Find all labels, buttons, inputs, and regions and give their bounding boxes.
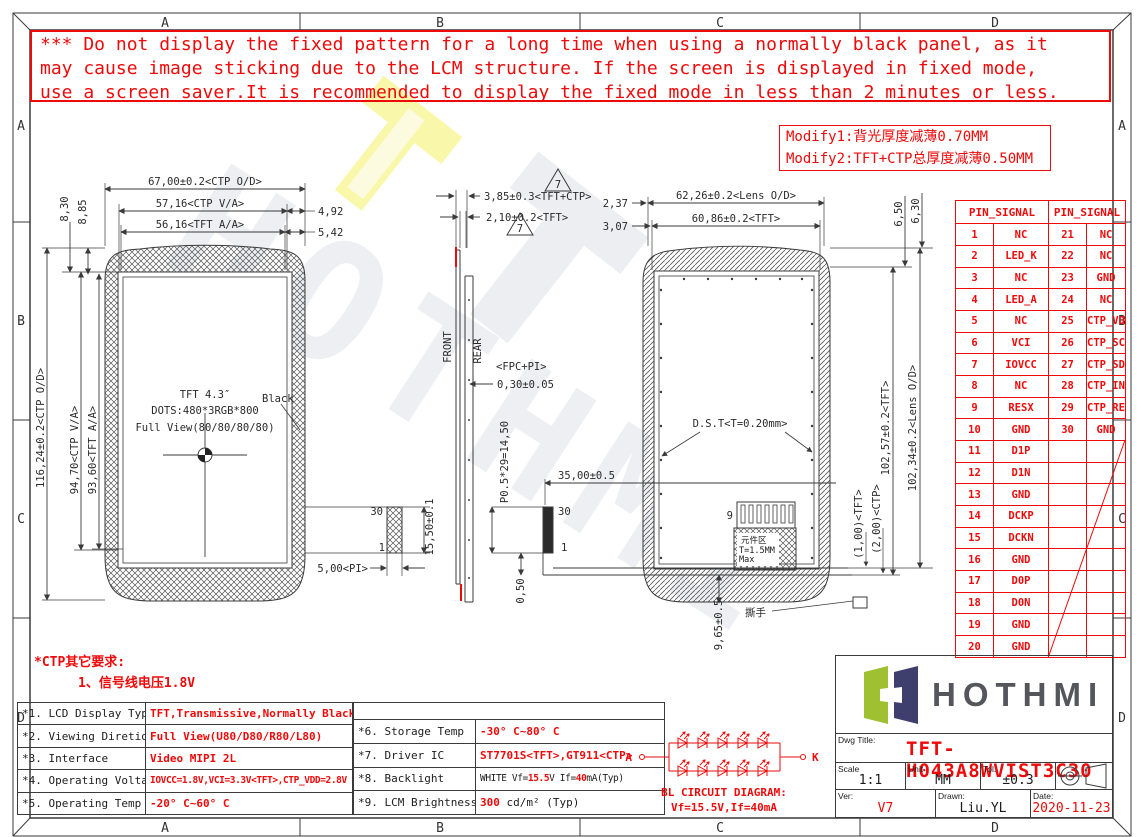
backlight-vf: 15.5 — [528, 773, 549, 784]
pin-no: 17 — [956, 571, 994, 593]
pin-no — [1049, 484, 1087, 506]
modify-note: Modify1:背光厚度减薄0.70MM Modify2:TFT+CTP总厚度减… — [779, 125, 1051, 171]
ver-row: Ver: V7 Drawn: Liu.YL Date: 2020-11-23 — [836, 790, 1112, 817]
pin-no: 13 — [956, 484, 994, 506]
pin-row: 10GND30GND — [956, 419, 1126, 441]
spec-value: TFT,Transmissive,Normally Black — [146, 703, 353, 725]
ver-value: V7 — [836, 801, 935, 816]
unit-cell: Unit MM — [906, 763, 981, 789]
projection-symbol-cell — [1056, 763, 1112, 789]
pin-signal: NC — [994, 311, 1049, 333]
pin-signal: GND — [994, 484, 1049, 506]
pin-signal: D0P — [994, 571, 1049, 593]
scale-row: Scale 1:1 Unit MM Tol. ±0.3 — [836, 763, 1112, 790]
drawn-value: Liu.YL — [936, 801, 1030, 816]
pin-signal: NC — [1087, 224, 1126, 246]
zone-left-a: A — [17, 119, 25, 134]
modify-line2: Modify2:TFT+CTP总厚度减薄0.50MM — [786, 148, 1044, 170]
dwg-title-label: Dwg Title: — [838, 735, 875, 745]
pin-signal: NC — [994, 224, 1049, 246]
dwg-title-row: Dwg Title: TFT-H043A8WVIST3C30 — [836, 734, 1112, 763]
watermark-logo-gray — [440, 150, 720, 430]
pin-row: 17D0P — [956, 571, 1126, 593]
backlight-mid: V If= — [549, 773, 576, 784]
pin-row: 19GND — [956, 614, 1126, 636]
logo-row: HOTHMI — [836, 656, 1112, 734]
warning-line1: *** Do not display the fixed pattern for… — [40, 33, 1101, 57]
scale-value: 1:1 — [836, 773, 905, 788]
pin-no: 24 — [1049, 289, 1087, 311]
zone-top-d: D — [991, 16, 999, 31]
pin-no: 30 — [1049, 419, 1087, 441]
pin-row: 16GND — [956, 549, 1126, 571]
pin-signal: RESX — [994, 397, 1049, 419]
zone-bottom-a: A — [161, 821, 169, 836]
ctp-note-line2: 1、信号线电压1.8V — [34, 673, 195, 694]
pin-no: 27 — [1049, 354, 1087, 376]
pin-no: 7 — [956, 354, 994, 376]
pin-row: 15DCKN — [956, 527, 1126, 549]
pin-row: 12D1N — [956, 462, 1126, 484]
scale-cell: Scale 1:1 — [836, 763, 906, 789]
dim-rear-height-tft: 102,57±0.2<TFT> — [880, 381, 892, 476]
pin-table-header: PIN_SIGNAL PIN_SIGNAL — [956, 201, 1126, 224]
spec-row: *3. InterfaceVideo MIPI 2L — [18, 747, 353, 769]
pin-row: 4LED_A24NC — [956, 289, 1126, 311]
bl-cathode-label: K — [812, 751, 819, 764]
pin-row: 13GND — [956, 484, 1126, 506]
pin-signal: GND — [994, 614, 1049, 636]
brightness-unit: cd/m² (Typ) — [500, 796, 579, 809]
pin-no: 18 — [956, 592, 994, 614]
front-fpc-pin30: 30 — [370, 506, 383, 518]
dim-front-pi: 5,00<PI> — [317, 563, 368, 575]
warning-note: *** Do not display the fixed pattern for… — [30, 30, 1111, 102]
pin-row: 8NC28CTP_INT — [956, 376, 1126, 398]
dim-rear-050: 0,50 — [515, 578, 527, 603]
pin-signal: LED_K — [994, 246, 1049, 268]
spec-value: -20° C~60° C — [146, 792, 353, 814]
pin-signal — [1087, 462, 1126, 484]
pin-row: 6VCI26CTP_SCL — [956, 332, 1126, 354]
spec-value: IOVCC=1.8V,VCI=3.3V<TFT>,CTP_VDD=2.8V — [146, 770, 353, 792]
spec-label: *5. Operating Temp — [18, 792, 146, 814]
ver-cell: Ver: V7 — [836, 790, 936, 817]
pin-no: 6 — [956, 332, 994, 354]
ctp-requirements-note: *CTP其它要求: 1、信号线电压1.8V — [34, 652, 195, 694]
pin-no: 10 — [956, 419, 994, 441]
pin-signal: NC — [994, 267, 1049, 289]
pin-signal: NC — [1087, 289, 1126, 311]
ctp-note-line1: *CTP其它要求: — [34, 652, 195, 673]
spec-label: *4. Operating Voltage — [18, 770, 146, 792]
spec-row: *5. Operating Temp-20° C~60° C — [18, 792, 353, 814]
front-fpc-pin1: 1 — [379, 542, 385, 554]
pin-no: 3 — [956, 267, 994, 289]
pin-signal: GND — [1087, 267, 1126, 289]
pin-signal: D1N — [994, 462, 1049, 484]
pin-no: 22 — [1049, 246, 1087, 268]
pin-no: 2 — [956, 246, 994, 268]
hothmi-logo-icon — [858, 664, 924, 726]
spec-row: *2. Viewing DiretionFull View(U80/D80/R8… — [18, 725, 353, 747]
pin-signal — [1087, 484, 1126, 506]
pin-no: 19 — [956, 614, 994, 636]
pin-no — [1049, 549, 1087, 571]
ver-label: Ver: — [838, 791, 853, 801]
pin-signal — [1087, 571, 1126, 593]
pin-no: 1 — [956, 224, 994, 246]
pin-no: 29 — [1049, 397, 1087, 419]
zone-top-a: A — [161, 16, 169, 31]
pin-signal: DCKP — [994, 506, 1049, 528]
tol-value: ±0.3 — [981, 773, 1055, 788]
dim-front-height-ctp: 116,24±0.2<CTP O/D> — [35, 368, 47, 488]
zone-left-c: C — [17, 512, 25, 527]
pin-signal: D1P — [994, 441, 1049, 463]
pin-signal: CTP_SCL — [1087, 332, 1126, 354]
pin-signal: VCI — [994, 332, 1049, 354]
pin-signal — [1087, 441, 1126, 463]
pin-no: 4 — [956, 289, 994, 311]
pin-signal: DCKN — [994, 527, 1049, 549]
dim-rear-height-lens: 102,34±0.2<Lens O/D> — [907, 365, 919, 491]
pin-signal — [1087, 614, 1126, 636]
pin-signal: CTP_INT — [1087, 376, 1126, 398]
pin-signal: CTP_SDA — [1087, 354, 1126, 376]
bl-subtitle: Vf=15.5V,If=40mA — [671, 801, 777, 814]
backlight-prefix: WHITE Vf= — [480, 773, 528, 784]
front-spec-line3: Full View(80/80/80/80) — [135, 422, 274, 434]
backlight-if: 40 — [576, 773, 587, 784]
spec-table-left: *1. LCD Display TypeTFT,Transmissive,Nor… — [17, 702, 353, 815]
pin-no: 21 — [1049, 224, 1087, 246]
pin-row: 9RESX29CTP_RES — [956, 397, 1126, 419]
pin-no: 28 — [1049, 376, 1087, 398]
pin-row: 7IOVCC27CTP_SDA — [956, 354, 1126, 376]
unit-value: MM — [906, 773, 980, 788]
pin-row: 2LED_K22NC — [956, 246, 1126, 268]
drawn-label: Drawn: — [938, 791, 965, 801]
pin-signal: CTP_VDD — [1087, 311, 1126, 333]
pin-no: 9 — [956, 397, 994, 419]
pin-no — [1049, 592, 1087, 614]
pin-signal: NC — [994, 376, 1049, 398]
pin-signal: GND — [994, 419, 1049, 441]
zone-top-c: C — [716, 16, 724, 31]
pin-row: 14DCKP — [956, 506, 1126, 528]
zone-left-b: B — [17, 314, 25, 329]
pin-no — [1049, 506, 1087, 528]
front-spec-line1: TFT 4.3″ — [180, 389, 231, 401]
pin-signal: LED_A — [994, 289, 1049, 311]
zone-right-a: A — [1118, 119, 1126, 134]
bl-title: BL CIRCUIT DIAGRAM: — [661, 786, 787, 799]
date-cell: Date: 2020-11-23 — [1031, 790, 1112, 817]
spec-label: *2. Viewing Diretion — [18, 725, 146, 747]
spec-label: *7. Driver IC — [354, 743, 476, 767]
pin-no: 14 — [956, 506, 994, 528]
pin-no: 23 — [1049, 267, 1087, 289]
pin-row: 18D0N — [956, 592, 1126, 614]
spec-value: Video MIPI 2L — [146, 747, 353, 769]
bl-anode-label: A — [625, 751, 632, 764]
drawn-cell: Drawn: Liu.YL — [936, 790, 1031, 817]
drawing-sheet: HOTHMI — [0, 0, 1145, 837]
dim-front-fpc-length: 15,50±0.1 — [424, 499, 436, 556]
spec-label: *1. LCD Display Type — [18, 703, 146, 725]
pin-signal-table: PIN_SIGNAL PIN_SIGNAL 1NC21NC 2LED_K22NC… — [955, 200, 1125, 658]
dim-front-885: 8,85 — [77, 199, 89, 224]
pin-signal: IOVCC — [994, 354, 1049, 376]
bl-circuit-diagram: A K BL CIRCUIT DIAGRAM: Vf=15.5V,If=40mA — [612, 726, 852, 818]
front-black-label: Black — [262, 393, 294, 405]
pin-signal — [1087, 506, 1126, 528]
pin-no: 11 — [956, 441, 994, 463]
pin-signal: CTP_RES — [1087, 397, 1126, 419]
spec-label: *6. Storage Temp — [354, 720, 476, 744]
spec-row: *4. Operating VoltageIOVCC=1.8V,VCI=3.3V… — [18, 770, 353, 792]
spec-label: *3. Interface — [18, 747, 146, 769]
pin-signal — [1087, 549, 1126, 571]
modify-line1: Modify1:背光厚度减薄0.70MM — [786, 126, 1044, 148]
pin-signal: NC — [1087, 246, 1126, 268]
title-block: HOTHMI Dwg Title: TFT-H043A8WVIST3C30 Sc… — [835, 655, 1113, 818]
pin-header-right: PIN_SIGNAL — [1049, 201, 1126, 224]
pin-no: 5 — [956, 311, 994, 333]
pin-no — [1049, 571, 1087, 593]
brand-name: HOTHMI — [932, 676, 1104, 714]
spec-label: *9. LCM Brightness — [354, 791, 476, 815]
zone-bottom-b: B — [436, 821, 444, 836]
warning-line3: use a screen saver.It is recommended to … — [40, 81, 1101, 105]
dim-front-830: 8,30 — [59, 196, 71, 221]
dim-rear-650: 6,50 — [893, 201, 905, 226]
brightness-value: 300 — [480, 796, 500, 809]
pin-header-left: PIN_SIGNAL — [956, 201, 1049, 224]
projection-symbol-icon — [1056, 763, 1110, 789]
dim-front-height-va: 94,70<CTP V/A> — [69, 406, 81, 495]
pin-signal: GND — [1087, 419, 1126, 441]
pin-signal: GND — [994, 549, 1049, 571]
pin-row: 3NC23GND — [956, 267, 1126, 289]
pin-row: 5NC25CTP_VDD — [956, 311, 1126, 333]
warning-line2: may cause image sticking due to the LCM … — [40, 57, 1101, 81]
pin-no: 16 — [956, 549, 994, 571]
spec-row: *1. LCD Display TypeTFT,Transmissive,Nor… — [18, 703, 353, 725]
tol-cell: Tol. ±0.3 — [981, 763, 1056, 789]
pin-signal — [1087, 527, 1126, 549]
pin-no — [1049, 441, 1087, 463]
pin-no: 12 — [956, 462, 994, 484]
front-spec-line2: DOTS:480*3RGB*800 — [151, 405, 258, 417]
pin-no: 15 — [956, 527, 994, 549]
spec-label: *8. Backlight — [354, 767, 476, 791]
date-label: Date: — [1033, 791, 1053, 801]
pin-no — [1049, 462, 1087, 484]
pin-no: 25 — [1049, 311, 1087, 333]
pin-row: 11D1P — [956, 441, 1126, 463]
zone-bottom-c: C — [716, 821, 724, 836]
spec-value: Full View(U80/D80/R80/L80) — [146, 725, 353, 747]
pin-signal — [1087, 592, 1126, 614]
pin-no — [1049, 527, 1087, 549]
pin-no: 8 — [956, 376, 994, 398]
pin-signal: D0N — [994, 592, 1049, 614]
spec-empty-cell — [354, 703, 665, 720]
zone-top-b: B — [436, 16, 444, 31]
dim-rear-630: 6,30 — [910, 198, 922, 223]
pin-no: 26 — [1049, 332, 1087, 354]
pin-no — [1049, 614, 1087, 636]
date-value: 2020-11-23 — [1031, 801, 1112, 816]
dim-front-height-aa: 93,60<TFT A/A> — [87, 406, 99, 495]
pin-row: 1NC21NC — [956, 224, 1126, 246]
spec-spacer-row — [354, 703, 665, 720]
